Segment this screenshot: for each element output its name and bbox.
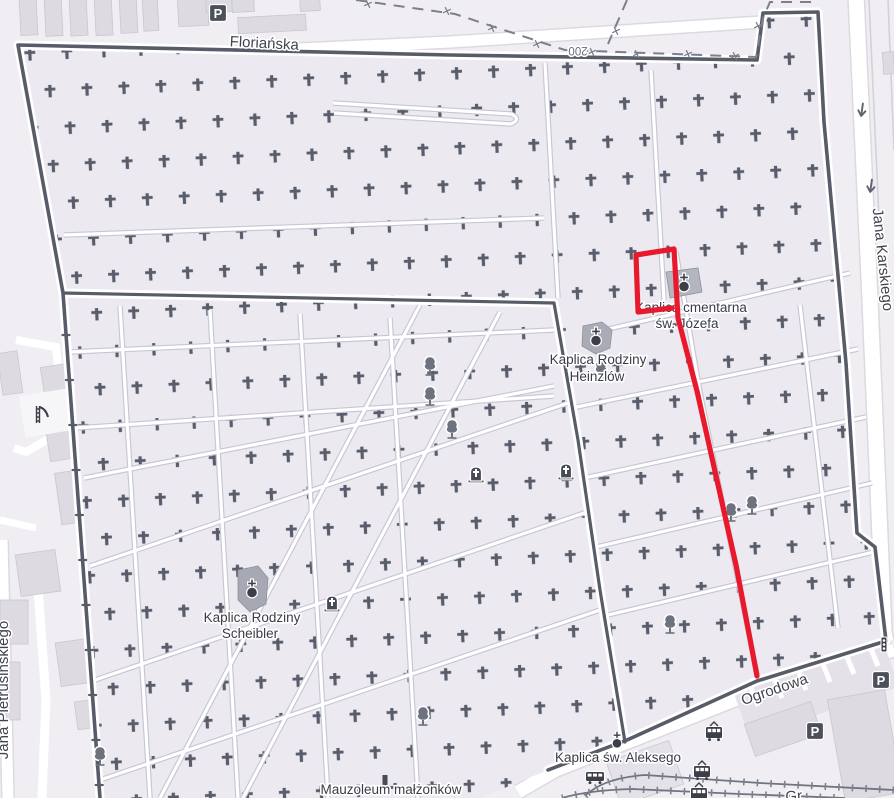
traffic-light-icon (881, 637, 887, 652)
poi-label-scheibler-1: Kaplica Rodziny (204, 610, 301, 625)
poi-label-jozefa-2: św. Józefa (655, 316, 719, 331)
chapel-aleksego-icon (612, 731, 622, 748)
chapel-scheibler-icon (247, 579, 258, 598)
memorial-icon (324, 596, 340, 612)
parking-letter: P (811, 724, 820, 739)
street-label-partial: Gr (785, 787, 803, 798)
poi-label-aleksego: Kaplica św. Aleksego (555, 750, 681, 765)
map-viewport[interactable]: P P P Floriańska Jana Karskiego Ogrodowa… (0, 0, 894, 798)
poi-label-scheibler-2: Scheibler (222, 626, 279, 641)
map-canvas[interactable]: P P P Floriańska Jana Karskiego Ogrodowa… (0, 0, 894, 798)
wall-length-label: 200 (568, 44, 587, 56)
parking-letter: P (214, 6, 223, 21)
memorial-icon (558, 464, 574, 480)
chapel-heinzlow-icon (591, 327, 602, 346)
poi-label-heinzlow-2: Heinzlów (570, 369, 625, 384)
poi-label-heinzlow-1: Kaplica Rodziny (550, 352, 647, 367)
street-label-pietrusinskiego: Jana Pietrusińskiego (0, 621, 12, 759)
poi-label-mauzoleum: Mauzoleum małżonków (320, 782, 461, 797)
parking-letter: P (877, 673, 886, 688)
memorial-icon (468, 467, 484, 483)
chapel-jozefa-icon (679, 273, 690, 292)
